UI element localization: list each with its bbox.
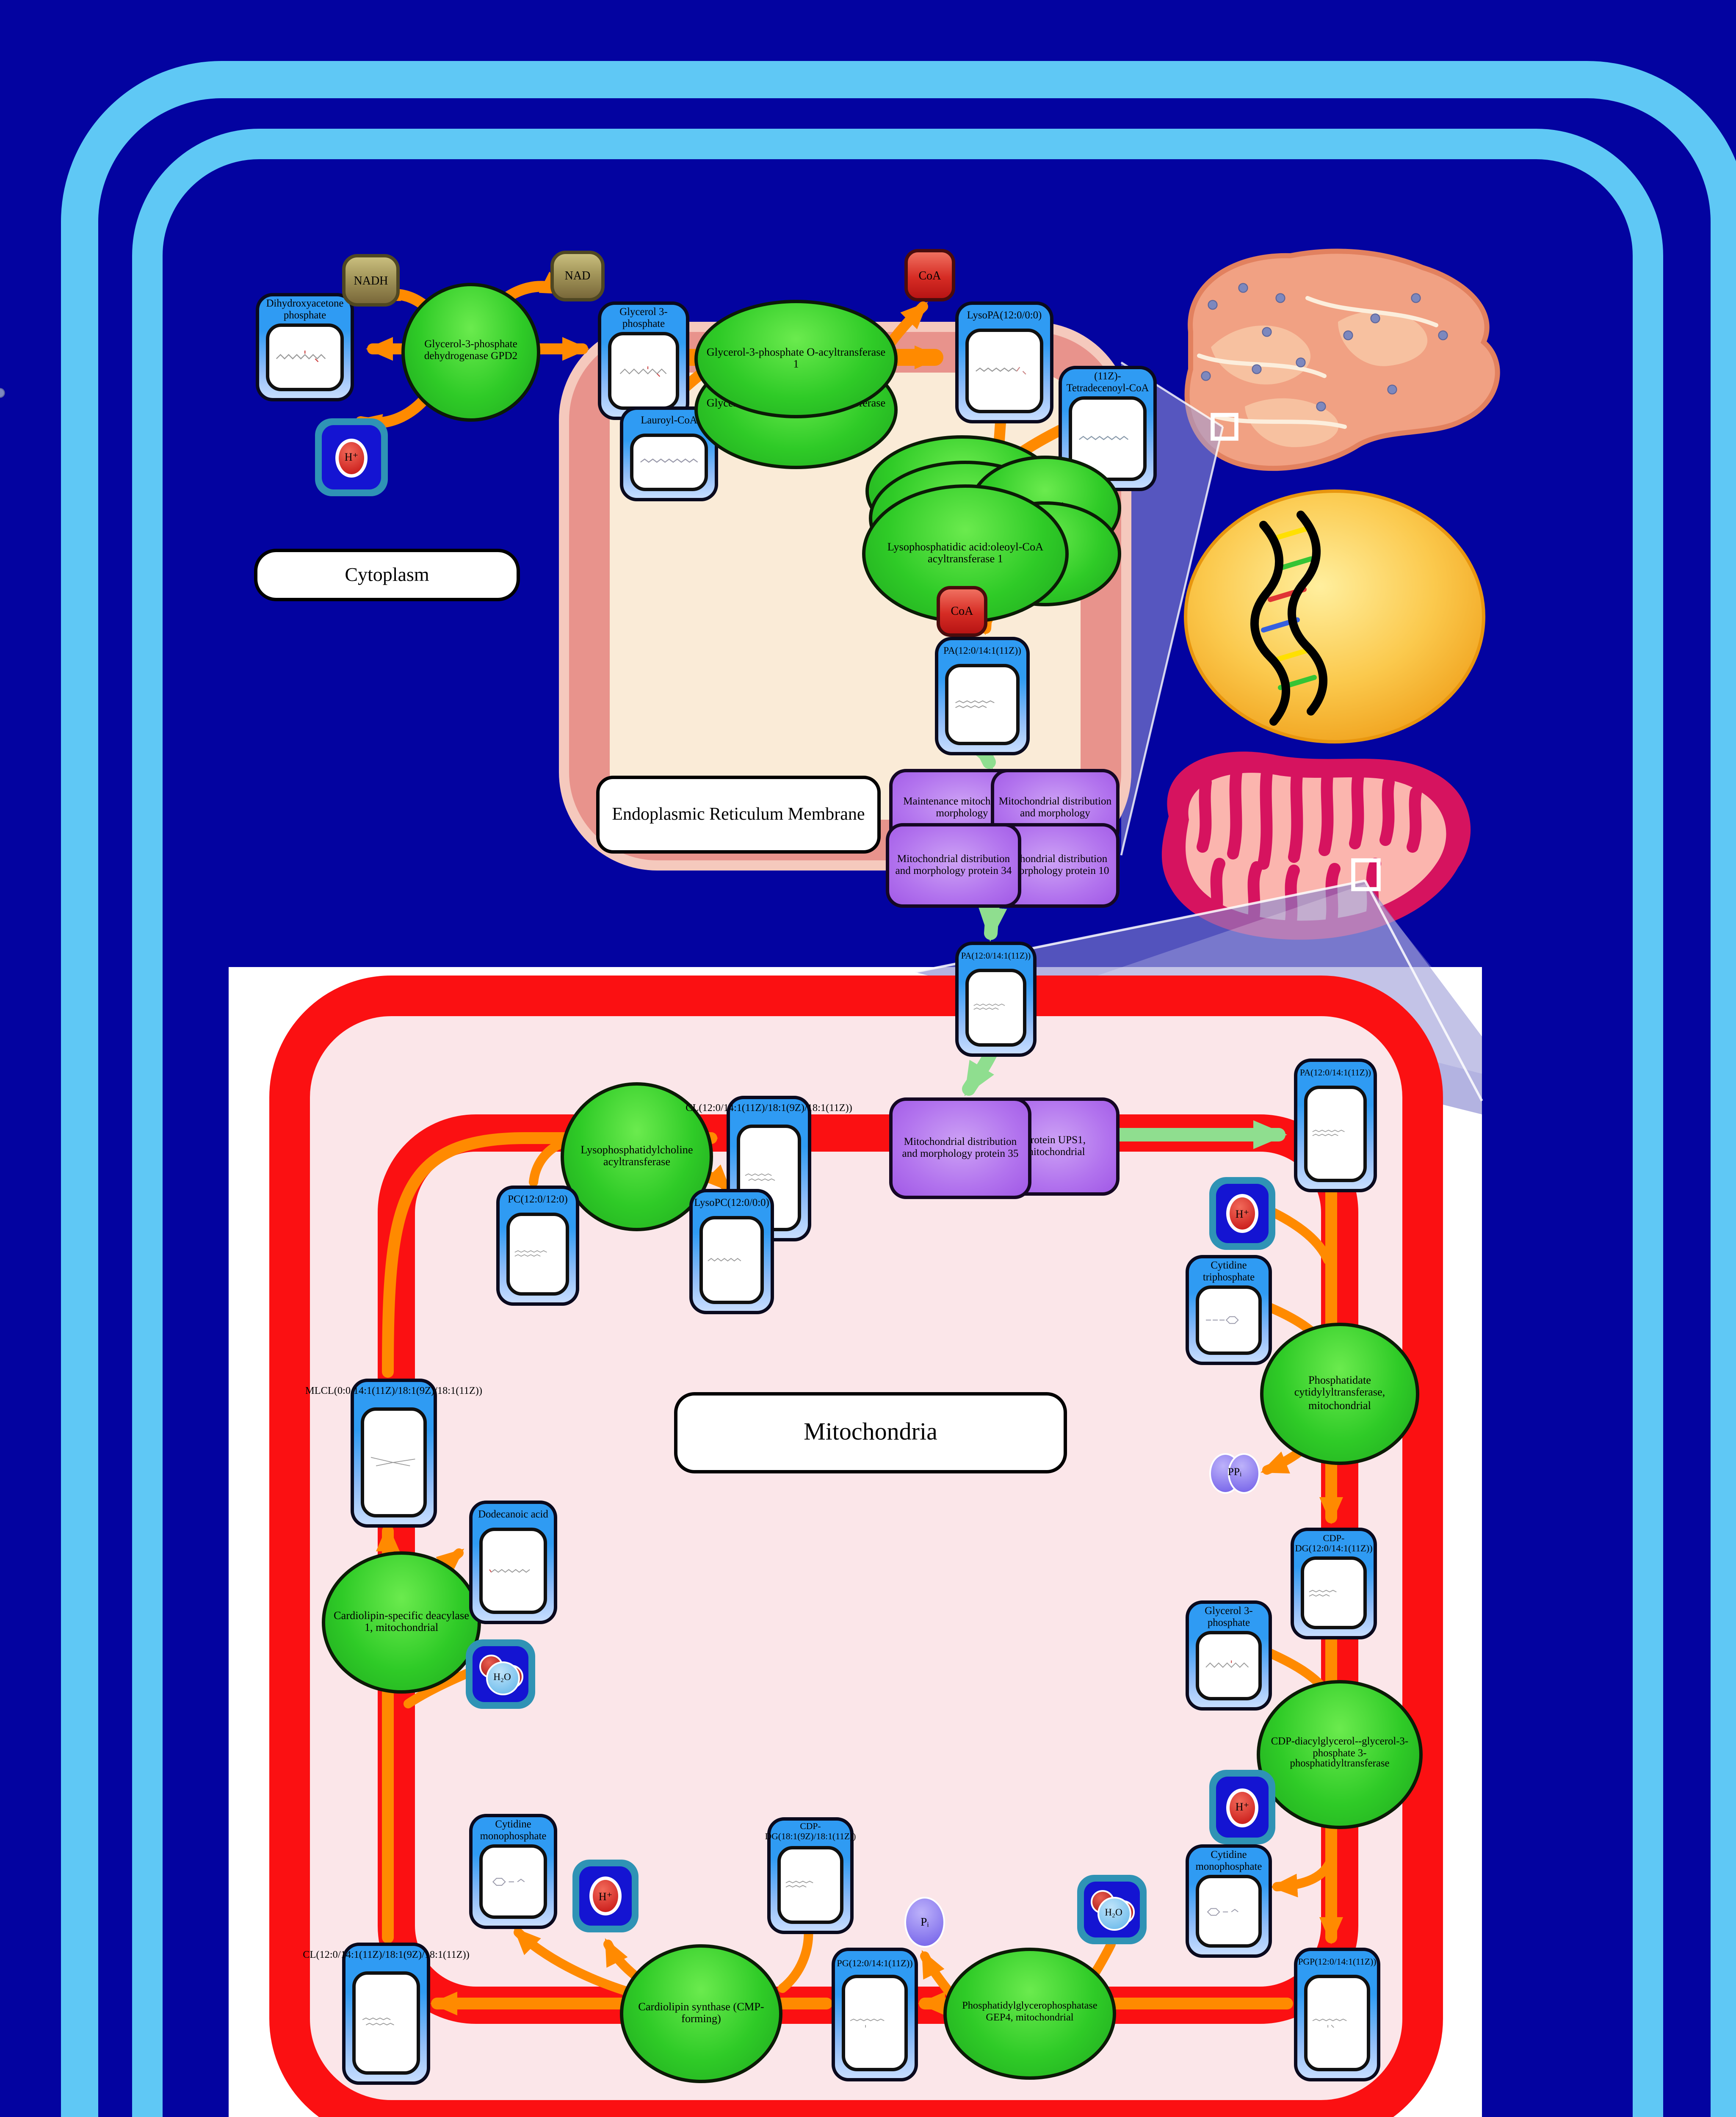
molecule-structure-icon [352, 1971, 420, 2075]
metabolite-label: Glycerol 3-phosphate [1189, 1604, 1269, 1631]
cytoplasm-label: Cytoplasm [254, 549, 520, 601]
enzyme-label: Lysophosphatidylcholine acyltransferase [569, 1144, 705, 1169]
metabolite-label: Dihydroxyacetone phosphate [259, 296, 351, 324]
enzyme-cardiolipin-synthase[interactable]: Cardiolipin synthase (CMP-forming) [620, 1944, 782, 2083]
metabolite-cmp-right[interactable]: Cytidine monophosphate [1186, 1844, 1272, 1958]
metabolite-label: PA(12:0/14:1(11Z)) [938, 640, 1026, 664]
molecule-structure-icon [266, 324, 344, 391]
metabolite-cdp-dg-12-0-14-1[interactable]: CDP-DG(12:0/14:1(11Z)) [1291, 1528, 1377, 1639]
molecule-structure-icon [699, 1216, 764, 1304]
ion-label: H⁺ [345, 450, 359, 464]
molecule-structure-icon [608, 332, 679, 410]
metabolite-label: (11Z)-Tetradecenoyl-CoA [1062, 369, 1153, 397]
water-icon: H₂O [1084, 1882, 1140, 1937]
metabolite-label: Cytidine monophosphate [1189, 1848, 1269, 1875]
enzyme-phosphatidate-cytidylyltransferase[interactable]: Phosphatidate cytidylyltransferase, mito… [1260, 1323, 1419, 1465]
molecule-structure-icon [361, 1407, 427, 1517]
cofactor-label: NADH [354, 274, 388, 287]
metabolite-label: PA(12:0/14:1(11Z)) [959, 945, 1033, 969]
enzyme-label: Cardiolipin synthase (CMP-forming) [628, 2001, 774, 2026]
stage: Dihydroxyacetone phosphate NADH NAD Glyc… [0, 0, 1736, 2117]
h-plus-icon: H⁺ [579, 1866, 632, 1926]
molecule-structure-icon [777, 1845, 843, 1924]
metabolite-label: LysoPA(12:0/0:0) [959, 305, 1050, 329]
cofactor-h2o-bottom[interactable]: H₂O [1077, 1875, 1147, 1944]
metabolite-ctp[interactable]: Cytidine triphosphate [1186, 1255, 1272, 1365]
ion-label: H⁺ [1236, 1800, 1249, 1814]
molecule-structure-icon [945, 664, 1020, 745]
protein-label: Mitochondrial distribution and morpholog… [893, 854, 1015, 877]
protein-mdm34[interactable]: Mitochondrial distribution and morpholog… [886, 823, 1021, 908]
molecule-structure-icon [479, 1845, 547, 1919]
cofactor-label: CoA [919, 268, 941, 282]
cofactor-label: PPᵢ [1228, 1466, 1242, 1478]
metabolite-pa-intermediate[interactable]: PA(12:0/14:1(11Z)) [955, 942, 1037, 1057]
protein-mdm35[interactable]: Mitochondrial distribution and morpholog… [889, 1097, 1031, 1199]
metabolite-pa-mito[interactable]: PA(12:0/14:1(11Z)) [1294, 1058, 1377, 1192]
metabolite-mlcl[interactable]: MLCL(0:0/14:1(11Z)/18:1(9Z)/18:1(11Z)) [351, 1379, 437, 1528]
water-icon: H₂O [473, 1646, 528, 1702]
metabolite-lysopa[interactable]: LysoPA(12:0/0:0) [955, 301, 1053, 423]
enzyme-label: Glycerol-3-phosphate O-acyltransferase 1 [703, 347, 889, 371]
enzyme-label: Glycerol-3-phosphate dehydrogenase GPD2 [410, 340, 532, 364]
pathway-diagram: Dihydroxyacetone phosphate NADH NAD Glyc… [0, 0, 1736, 2117]
enzyme-gep4[interactable]: Phosphatidylglycerophosphatase GEP4, mit… [943, 1948, 1116, 2080]
cofactor-label: Pᵢ [921, 1916, 929, 1928]
enzyme-label: Phosphatidate cytidylyltransferase, mito… [1269, 1376, 1411, 1412]
metabolite-glycerol-3-phosphate-mito[interactable]: Glycerol 3-phosphate [1186, 1600, 1272, 1711]
metabolite-label: CDP-DG(18:1(9Z)/18:1(11Z)) [771, 1821, 850, 1845]
cofactor-coa-er[interactable]: CoA [937, 586, 987, 637]
molecule-structure-icon [1196, 1875, 1262, 1948]
protein-label: Mitochondrial distribution and morpholog… [998, 796, 1113, 820]
cofactor-h-plus-mito-2[interactable]: H⁺ [1209, 1770, 1275, 1844]
enzyme-gpd2[interactable]: Glycerol-3-phosphate dehydrogenase GPD2 [401, 283, 540, 422]
er-membrane-label: Endoplasmic Reticulum Membrane [596, 776, 881, 854]
protein-label: Mitochondrial distribution and morpholog… [896, 1136, 1025, 1160]
metabolite-pa-er[interactable]: PA(12:0/14:1(11Z)) [935, 637, 1030, 755]
metabolite-label: CL(12:0/14:1(11Z)/18:1(9Z)/18:1(11Z)) [303, 1950, 470, 1960]
h-plus-icon: H⁺ [322, 425, 381, 489]
cofactor-h-plus-mito-1[interactable]: H⁺ [1209, 1177, 1275, 1250]
metabolite-label: PG(12:0/14:1(11Z)) [835, 1951, 915, 1975]
h-plus-icon: H⁺ [1216, 1184, 1269, 1243]
metabolite-dodecanoic-acid[interactable]: Dodecanoic acid [469, 1501, 557, 1624]
metabolite-label: PC(12:0/12:0) [500, 1189, 576, 1213]
metabolite-label: LysoPC(12:0/0:0) [693, 1192, 771, 1216]
metabolite-label: Glycerol 3-phosphate [601, 305, 686, 332]
cofactor-coa-top[interactable]: CoA [904, 249, 955, 301]
mitochondria-label: Mitochondria [674, 1392, 1067, 1473]
enzyme-label: Lysophosphatidic acid:oleoyl-CoA acyltra… [871, 542, 1060, 566]
metabolite-cl-bottom[interactable]: CL(12:0/14:1(11Z)/18:1(9Z)/18:1(11Z)) [342, 1943, 430, 2085]
metabolite-label: CL(12:0/14:1(11Z)/18:1(9Z)/18:1(11Z)) [686, 1103, 852, 1114]
h-plus-icon: H⁺ [1216, 1777, 1269, 1838]
water-label: H₂O [1105, 1908, 1122, 1918]
metabolite-cdp-dg-18-1[interactable]: CDP-DG(18:1(9Z)/18:1(11Z)) [767, 1817, 854, 1934]
molecule-structure-icon [1301, 1556, 1367, 1629]
metabolite-pc[interactable]: PC(12:0/12:0) [496, 1186, 579, 1306]
metabolite-dihydroxyacetone-phosphate[interactable]: Dihydroxyacetone phosphate [256, 293, 354, 401]
metabolite-label: PGP(12:0/14:1(11Z)) [1297, 1951, 1377, 1975]
cofactor-nadh[interactable]: NADH [342, 254, 400, 307]
water-label: H₂O [493, 1672, 511, 1683]
cofactor-label: CoA [951, 605, 973, 618]
cofactor-ppi[interactable]: PPᵢ [1209, 1453, 1260, 1490]
metabolite-label: Cytidine monophosphate [473, 1817, 554, 1845]
metabolite-pg[interactable]: PG(12:0/14:1(11Z)) [832, 1948, 918, 2081]
metabolite-label: Cytidine triphosphate [1189, 1258, 1269, 1286]
metabolite-label: CDP-DG(12:0/14:1(11Z)) [1294, 1531, 1374, 1556]
metabolite-label: Dodecanoic acid [473, 1504, 554, 1528]
metabolite-lysopc[interactable]: LysoPC(12:0/0:0) [689, 1189, 774, 1314]
ion-label: H⁺ [1236, 1207, 1249, 1220]
metabolite-cmp-left[interactable]: Cytidine monophosphate [469, 1814, 557, 1929]
metabolite-glycerol-3-phosphate-er[interactable]: Glycerol 3-phosphate [598, 301, 689, 420]
cofactor-label: NAD [565, 269, 591, 283]
molecule-structure-icon [965, 969, 1026, 1047]
molecule-structure-icon [842, 1975, 908, 2071]
enzyme-cardiolipin-deacylase-1[interactable]: Cardiolipin-specific deacylase 1, mitoch… [322, 1551, 481, 1694]
enzyme-label: Cardiolipin-specific deacylase 1, mitoch… [330, 1610, 473, 1635]
enzyme-label: CDP-diacylglycerol--glycerol-3-phosphate… [1265, 1737, 1414, 1772]
metabolite-pgp[interactable]: PGP(12:0/14:1(11Z)) [1294, 1948, 1380, 2081]
molecule-structure-icon [506, 1213, 569, 1296]
cofactor-h-plus-bottom-left[interactable]: H⁺ [572, 1860, 639, 1932]
enzyme-cdp-dag-glycerol-3-phosphate-phosphatidyltransferase[interactable]: CDP-diacylglycerol--glycerol-3-phosphate… [1257, 1680, 1423, 1829]
enzyme-gpat1[interactable]: Glycerol-3-phosphate O-acyltransferase 1 [694, 300, 898, 418]
cofactor-nad[interactable]: NAD [550, 251, 605, 301]
cofactor-h2o-left[interactable]: H₂O [466, 1639, 535, 1709]
molecule-structure-icon [479, 1528, 547, 1614]
molecule-structure-icon [630, 434, 708, 491]
molecule-structure-icon [1304, 1975, 1370, 2071]
molecule-structure-icon [1304, 1086, 1367, 1182]
metabolite-label: MLCL(0:0/14:1(11Z)/18:1(9Z)/18:1(11Z)) [305, 1386, 482, 1396]
molecule-structure-icon [1196, 1631, 1262, 1700]
cofactor-pi[interactable]: Pᵢ [904, 1897, 945, 1948]
molecule-structure-icon [1196, 1286, 1262, 1355]
enzyme-label: Phosphatidylglycerophosphatase GEP4, mit… [952, 2002, 1108, 2025]
metabolite-label: PA(12:0/14:1(11Z)) [1297, 1062, 1374, 1086]
cofactor-h-plus-cytoplasm[interactable]: H⁺ [315, 418, 388, 496]
molecule-structure-icon [965, 329, 1043, 413]
ion-label: H⁺ [599, 1889, 613, 1903]
